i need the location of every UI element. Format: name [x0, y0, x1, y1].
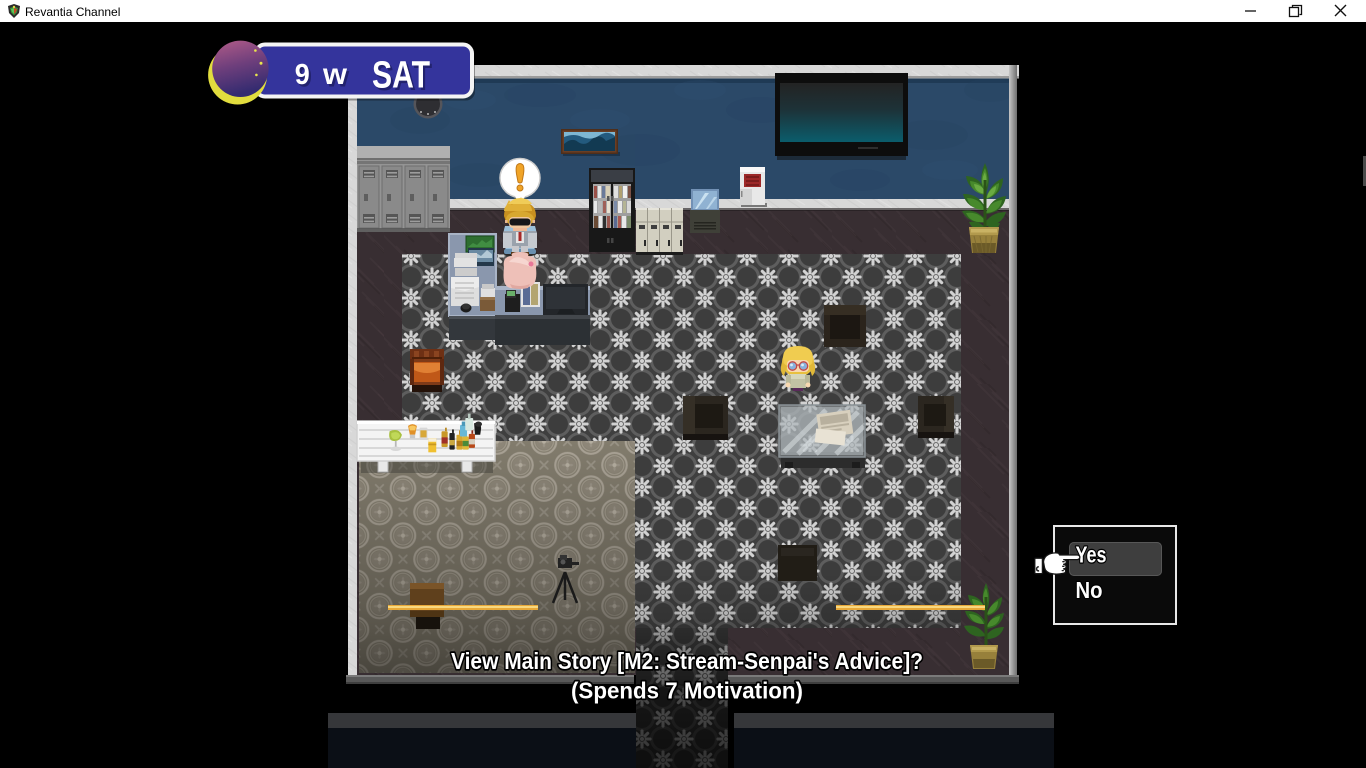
svg-text:w: w — [322, 58, 348, 91]
svg-text:SAT: SAT — [372, 55, 430, 97]
svg-text:9: 9 — [295, 59, 310, 91]
svg-text:(Spends 7 Motivation): (Spends 7 Motivation) — [571, 678, 803, 704]
svg-text:View Main Story [M2: Stream-Se: View Main Story [M2: Stream-Senpai's Adv… — [451, 648, 923, 674]
